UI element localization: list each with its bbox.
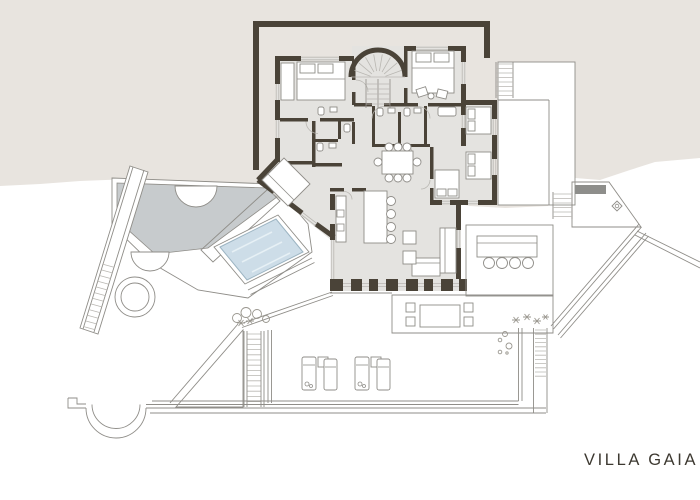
south-terrace bbox=[302, 293, 553, 390]
sun-loungers bbox=[302, 357, 390, 390]
floor-plan-drawing bbox=[0, 0, 700, 500]
outdoor-dining-set bbox=[406, 303, 473, 327]
coffee-table bbox=[403, 251, 416, 264]
floor-plan-page: VILLA GAIA bbox=[0, 0, 700, 500]
garden-stairs-right bbox=[498, 314, 549, 413]
bench bbox=[575, 185, 606, 194]
loop-path bbox=[86, 405, 146, 439]
kitchen bbox=[336, 191, 396, 244]
walkway-diagonal bbox=[551, 224, 700, 338]
gravel-circle bbox=[121, 283, 149, 311]
coffee-table bbox=[403, 231, 416, 244]
bed-nw bbox=[297, 62, 345, 100]
bed-east-1 bbox=[466, 107, 491, 134]
bed-east-2 bbox=[466, 152, 491, 179]
side-table bbox=[612, 201, 622, 211]
villa-name-label: VILLA GAIA bbox=[584, 451, 698, 470]
triangle-planting-bed bbox=[176, 330, 243, 407]
bed-south-east bbox=[435, 170, 459, 198]
upper-court bbox=[496, 62, 575, 205]
deck-terrace bbox=[466, 225, 553, 296]
wardrobe bbox=[281, 63, 294, 100]
outdoor-lounge-set bbox=[477, 236, 537, 269]
shrub-cluster bbox=[233, 308, 270, 327]
bed-ne bbox=[412, 51, 454, 93]
